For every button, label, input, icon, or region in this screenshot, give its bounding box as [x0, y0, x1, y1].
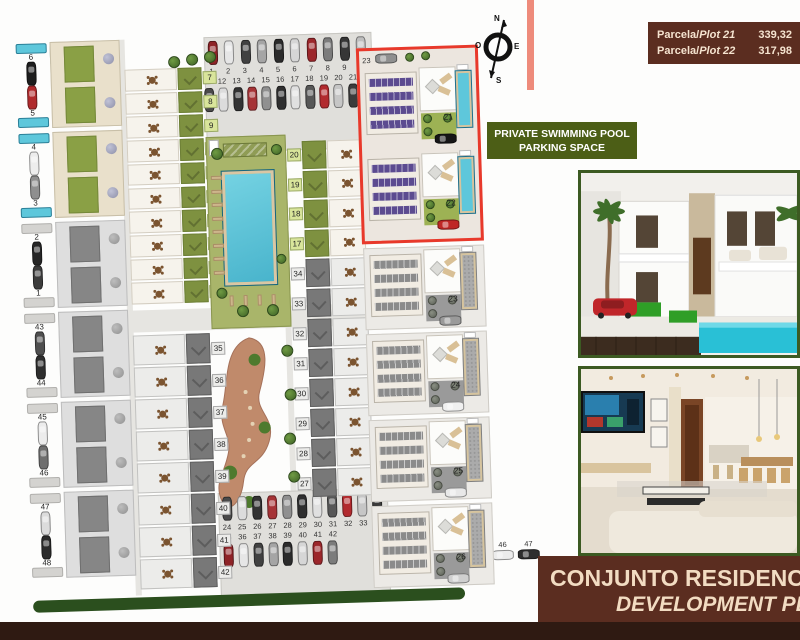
townhouse-body — [336, 437, 373, 466]
left-parking-block: 65 — [12, 42, 53, 129]
car-icon — [35, 331, 46, 355]
parking-slot: 46 — [491, 540, 514, 561]
townhouse-row: 42 — [140, 557, 233, 590]
sun-lounger — [211, 189, 222, 193]
solar-panel — [370, 120, 414, 129]
parking-pad — [23, 297, 54, 308]
car-icon — [304, 85, 315, 109]
left-parking-block: 21 — [17, 222, 58, 309]
plot-number: 42 — [218, 565, 232, 578]
car-icon — [27, 85, 38, 109]
solar-panel — [369, 92, 413, 101]
communal-garden — [206, 135, 292, 329]
parking-number: 18 — [305, 74, 314, 83]
left-parking-block: 4344 — [20, 312, 61, 399]
garden — [72, 316, 103, 353]
pool-shed — [464, 332, 476, 338]
roof-deck — [439, 73, 452, 85]
parking-number: 42 — [329, 529, 338, 538]
compass-rose: N S E O — [474, 12, 522, 88]
parking-number: 23 — [362, 56, 371, 65]
plot-number: 43 — [35, 323, 44, 331]
bottom-border-band — [0, 622, 800, 640]
townhouse-row: 19 — [288, 169, 365, 199]
townhouse-roof — [307, 318, 332, 347]
car-icon — [276, 86, 287, 110]
parking-cars-row — [208, 36, 367, 65]
parking-number: 6 — [291, 64, 297, 73]
townhouse-body — [333, 347, 370, 376]
solar-panel — [379, 432, 423, 441]
house-block — [61, 400, 134, 488]
plot-21-area-row: Parcela/Plot 21 339,32 — [657, 29, 792, 42]
brochure-page: 1234567891011121314151617181920212224252… — [0, 0, 800, 640]
townhouse-roof — [309, 378, 334, 407]
plot-block: 23 — [363, 244, 487, 330]
banner-title: CONJUNTO RESIDENCIAL — [538, 565, 800, 592]
feature-line-2: PARKING SPACE — [487, 141, 637, 155]
parking-number: 37 — [253, 532, 262, 541]
house-block — [64, 490, 137, 578]
townhouse-row: 34 — [290, 257, 367, 287]
townhouse-body — [330, 257, 367, 286]
top-parking-row2: 111213141516171819202122 — [204, 72, 373, 112]
highlighted-zone: 232122 — [356, 45, 484, 245]
villa-roof-panels — [375, 425, 429, 489]
solar-panel — [374, 288, 418, 297]
car-icon — [41, 535, 52, 559]
plot-number: 7 — [202, 71, 216, 84]
parking-number: 8 — [325, 63, 331, 72]
plot-number: 31 — [294, 357, 308, 370]
compass-east: E — [514, 42, 519, 51]
skylight — [438, 519, 454, 535]
parking-number: 14 — [247, 76, 256, 85]
skylight — [435, 433, 451, 449]
car-icon — [327, 540, 338, 564]
plot-number: 38 — [214, 437, 228, 450]
parking-number: 30 — [314, 520, 323, 529]
townhouse-body — [140, 558, 193, 590]
townhouse-roof — [190, 461, 215, 492]
townhouse-body — [127, 163, 180, 186]
sun-lounger — [212, 216, 223, 220]
villa-roof-panels — [377, 511, 431, 575]
roof-deck — [442, 159, 455, 171]
solar-panel — [383, 559, 427, 568]
townhouse-roof — [180, 162, 205, 184]
plot-number: 41 — [217, 533, 231, 546]
tree-icon — [267, 304, 279, 316]
parking-number: 40 — [298, 530, 307, 539]
solar-panel — [374, 274, 418, 283]
townhouse-body — [129, 210, 182, 233]
villa-plot: 23 — [367, 246, 480, 331]
tree-icon — [271, 144, 282, 155]
townhouse-body — [133, 334, 186, 366]
features-badge: PRIVATE SWIMMING POOL PARKING SPACE — [487, 122, 637, 159]
sun-lounger — [258, 295, 262, 306]
villa-roof-panels — [372, 339, 426, 403]
townhouse-row: 9 — [126, 114, 219, 139]
tree-icon — [114, 413, 125, 424]
townhouse-roof — [183, 233, 208, 255]
car-icon — [298, 541, 309, 565]
pool-shed — [456, 64, 468, 70]
car-icon — [247, 87, 258, 111]
tree-icon — [276, 254, 286, 264]
villa-roof-terrace — [421, 152, 459, 197]
townhouse-body — [130, 234, 183, 257]
car-icon — [442, 401, 464, 412]
pool-shed — [461, 246, 473, 252]
townhouse-body — [135, 398, 188, 430]
townhouse-row: 7 — [124, 67, 217, 92]
skylight — [427, 165, 443, 181]
car-icon — [237, 496, 248, 520]
parking-pad — [29, 477, 60, 488]
townhouse-roof — [178, 91, 203, 113]
parking-number: 33 — [359, 518, 368, 527]
townhouse-roof — [183, 257, 208, 279]
left-parking-block: 4748 — [26, 492, 67, 579]
garden — [75, 405, 106, 442]
parking-number: 46 — [498, 540, 507, 549]
garden — [73, 357, 104, 394]
solar-panel — [372, 178, 416, 187]
townhouse-body — [124, 68, 177, 91]
tree-icon — [433, 481, 442, 490]
car-icon — [261, 86, 272, 110]
solar-panel — [375, 302, 419, 311]
tree-icon — [430, 382, 439, 391]
townhouse-row: 38 — [136, 429, 229, 462]
solar-panel — [383, 545, 427, 554]
garden — [69, 226, 100, 263]
roof-deck — [450, 525, 463, 535]
tree-icon — [109, 233, 120, 244]
townhouse-roof — [192, 525, 217, 556]
tree-icon — [118, 547, 129, 558]
townhouse-row: 35 — [133, 333, 226, 366]
plot-number: 18 — [289, 207, 303, 220]
private-pool — [458, 157, 475, 213]
car-icon — [37, 421, 48, 445]
townhouse-roof — [186, 333, 211, 364]
townhouse-roof — [311, 438, 336, 467]
tree-icon — [113, 367, 124, 378]
roof-deck — [440, 172, 453, 182]
car-icon — [518, 549, 540, 560]
tree-icon — [117, 503, 128, 514]
tree-icon — [103, 53, 114, 64]
plot-number: 22 — [446, 197, 456, 207]
car-icon — [40, 511, 51, 535]
roof-deck — [438, 86, 451, 96]
townhouse-body — [127, 139, 180, 162]
car-icon — [252, 496, 263, 520]
solar-panel — [377, 360, 421, 369]
parking-number: 20 — [334, 73, 343, 82]
car-icon — [267, 495, 278, 519]
townhouse-row: 8 — [125, 90, 218, 115]
car-icon — [253, 543, 264, 567]
townhouse-body — [128, 187, 181, 210]
solar-panel — [374, 260, 418, 269]
solar-panel — [382, 517, 426, 526]
parking-number: 47 — [524, 539, 533, 548]
house-block — [52, 130, 125, 218]
plot-areas-badge: Parcela/Plot 21 339,32 Parcela/Plot 22 3… — [648, 22, 800, 64]
tree-icon — [106, 143, 117, 154]
left-parking-block: 43 — [14, 132, 55, 219]
car-icon — [319, 84, 330, 108]
parking-cars-row — [204, 83, 373, 112]
parking-number: 5 — [275, 65, 281, 74]
skylight — [432, 347, 448, 363]
plot-22-area-row: Parcela/Plot 22 317,98 — [657, 45, 792, 58]
plot-number: 29 — [295, 417, 309, 430]
bottom-parking-row2: 3536373839404142 — [223, 529, 338, 568]
solar-panel — [382, 531, 426, 540]
villa-roof-panels — [369, 253, 423, 317]
parking-number: 38 — [268, 531, 277, 540]
red-marker-line — [527, 0, 534, 90]
parking-number: 31 — [329, 519, 338, 528]
townhouse-roof — [179, 115, 204, 137]
townhouse-body — [126, 115, 179, 138]
car-icon — [257, 39, 268, 63]
parking-number: 4 — [258, 65, 264, 74]
solar-panel — [370, 106, 414, 115]
pool-icon — [17, 117, 48, 128]
solar-panel — [376, 346, 420, 355]
car-icon — [297, 494, 308, 518]
townhouse-roof — [181, 186, 206, 208]
villa-roof-terrace — [418, 66, 456, 111]
car-icon — [30, 175, 41, 199]
car-icon — [306, 38, 317, 62]
tree-icon — [421, 51, 430, 60]
project-banner: CONJUNTO RESIDENCIAL DEVELOPMENT PLAN — [538, 556, 800, 622]
sun-lounger — [213, 257, 224, 261]
garden — [64, 46, 95, 83]
parking-number: 26 — [253, 522, 262, 531]
plot-number: 20 — [287, 148, 301, 161]
tree-icon — [116, 457, 127, 468]
garden — [65, 87, 96, 124]
parking-number: 12 — [218, 77, 227, 86]
townhouse-body — [125, 92, 178, 115]
townhouse-row: 40 — [138, 493, 231, 526]
solar-panel — [380, 473, 424, 482]
plot-number: 32 — [293, 327, 307, 340]
plot-number: 39 — [215, 469, 229, 482]
townhouse-body — [138, 494, 191, 526]
villa-roof-terrace — [423, 248, 461, 293]
roof-deck — [442, 267, 455, 277]
parking-number: 41 — [314, 530, 323, 539]
car-icon — [240, 40, 251, 64]
plot-number: 23 — [448, 293, 458, 303]
tree-icon — [405, 53, 414, 62]
townhouse-roof — [184, 280, 209, 302]
parking-number: 16 — [276, 75, 285, 84]
tree-icon — [237, 305, 249, 317]
tree-icon — [111, 323, 122, 334]
townhouse-roof — [310, 408, 335, 437]
villa-roof-panels — [365, 72, 419, 136]
townhouse-row: 32 — [292, 317, 369, 347]
car-icon — [327, 493, 338, 517]
townhouse-roof — [182, 209, 207, 231]
compass-south: S — [496, 76, 501, 85]
tree-icon — [216, 288, 227, 299]
car-icon — [29, 151, 40, 175]
sun-lounger — [211, 176, 222, 180]
plot-number: 2 — [34, 233, 39, 241]
parking-number: 25 — [238, 522, 247, 531]
solar-panel — [378, 388, 422, 397]
plot-number: 45 — [38, 413, 47, 421]
car-icon — [492, 550, 514, 561]
townhouse-roof — [306, 288, 331, 317]
car-icon — [290, 38, 301, 62]
plot-number: 37 — [213, 405, 227, 418]
tree-icon — [107, 187, 118, 198]
tree-icon — [211, 148, 223, 160]
car-icon — [33, 265, 44, 289]
plot-number: 3 — [33, 199, 38, 207]
parking-number: 36 — [238, 532, 247, 541]
car-icon — [283, 542, 294, 566]
car-icon — [312, 541, 323, 565]
plot-number: 6 — [29, 54, 34, 62]
car-icon — [290, 85, 301, 109]
plot-number: 26 — [456, 551, 466, 561]
plot-number: 34 — [291, 267, 305, 280]
private-pool — [468, 511, 485, 567]
car-icon — [445, 487, 467, 498]
car-icon — [273, 39, 284, 63]
townhouse-roof — [308, 348, 333, 377]
banner-subtitle: DEVELOPMENT PLAN — [538, 593, 800, 617]
car-icon — [35, 355, 46, 379]
parking-number: 27 — [268, 521, 277, 530]
car-icon — [437, 219, 459, 230]
townhouse-row: 28 — [296, 437, 373, 467]
plot-number: 24 — [451, 379, 461, 389]
garden — [66, 136, 97, 173]
townhouse-body — [130, 258, 183, 281]
townhouse-row: 17 — [290, 228, 367, 258]
parking-number: 32 — [344, 519, 353, 528]
feature-line-1: PRIVATE SWIMMING POOL — [487, 127, 637, 141]
townhouse-row: 29 — [295, 407, 372, 437]
townhouse-roof — [180, 138, 205, 160]
parking-slot: 47 — [517, 539, 540, 560]
plot-number: 5 — [30, 110, 35, 118]
solar-panel — [379, 445, 423, 454]
parking-number: 3 — [242, 66, 248, 75]
townhouse-body — [136, 430, 189, 462]
private-pool — [466, 425, 483, 481]
car-icon — [218, 87, 229, 111]
townhouse-row: 33 — [291, 287, 368, 317]
townhouse-body — [139, 526, 192, 558]
solar-panel — [372, 164, 416, 173]
roof-deck — [449, 426, 462, 438]
tree-icon — [110, 277, 121, 288]
parking-number: 9 — [341, 63, 347, 72]
plot-block: 26 — [371, 502, 495, 588]
bottom-parking: 24252627282930313233343536373839404142 — [222, 490, 384, 570]
car-icon — [342, 493, 353, 517]
garden — [71, 267, 102, 304]
roof-deck — [447, 341, 460, 353]
townhouse-roof — [302, 140, 327, 168]
communal-pool — [222, 170, 278, 286]
car-icon — [282, 495, 293, 519]
car-icon — [238, 543, 249, 567]
interior-photo — [578, 366, 800, 556]
parking-number: 28 — [283, 521, 292, 530]
skylight — [430, 261, 446, 277]
site-plan: 1234567891011121314151617181920212224252… — [0, 3, 493, 618]
house-block — [58, 310, 131, 398]
villa-plot: 24 — [370, 332, 483, 417]
plot-block: 24 — [366, 330, 490, 416]
garden — [78, 495, 109, 532]
tree-icon — [168, 56, 180, 68]
plot-number: 28 — [296, 447, 310, 460]
car-icon — [26, 61, 37, 85]
parking-cars-row — [223, 540, 338, 568]
house-block — [49, 40, 122, 128]
villa-plot: 22 — [365, 150, 478, 235]
solar-panel — [372, 192, 416, 201]
sun-lounger — [212, 203, 223, 207]
townhouse-roof — [305, 229, 330, 257]
tree-icon — [423, 127, 432, 136]
car-icon — [323, 37, 334, 61]
townhouse-roof — [191, 493, 216, 524]
tree-icon — [423, 114, 432, 123]
plot-number: 4 — [31, 144, 36, 152]
pool-icon — [20, 207, 51, 218]
sun-lounger — [212, 230, 223, 234]
car-icon — [312, 494, 323, 518]
townhouse-body — [332, 317, 369, 346]
car-icon — [339, 37, 350, 61]
townhouse-row: 39 — [137, 461, 230, 494]
plot-number: 19 — [288, 178, 302, 191]
parking-number: 15 — [261, 75, 270, 84]
left-parking-block: 4546 — [23, 402, 64, 489]
plot-number: 47 — [41, 503, 50, 511]
plot-22-area-value: 317,98 — [758, 45, 792, 58]
solar-panel — [377, 374, 421, 383]
interior-render-image — [581, 369, 797, 553]
townhouse-body — [337, 467, 374, 496]
villa-plot: 26 — [375, 504, 488, 589]
villa-roof-panels — [367, 157, 421, 221]
villa-roof-terrace — [426, 334, 464, 379]
plot-21-area-value: 339,32 — [758, 29, 792, 42]
car-icon — [435, 133, 457, 144]
townhouse-body — [131, 281, 184, 304]
tree-icon — [428, 309, 437, 318]
